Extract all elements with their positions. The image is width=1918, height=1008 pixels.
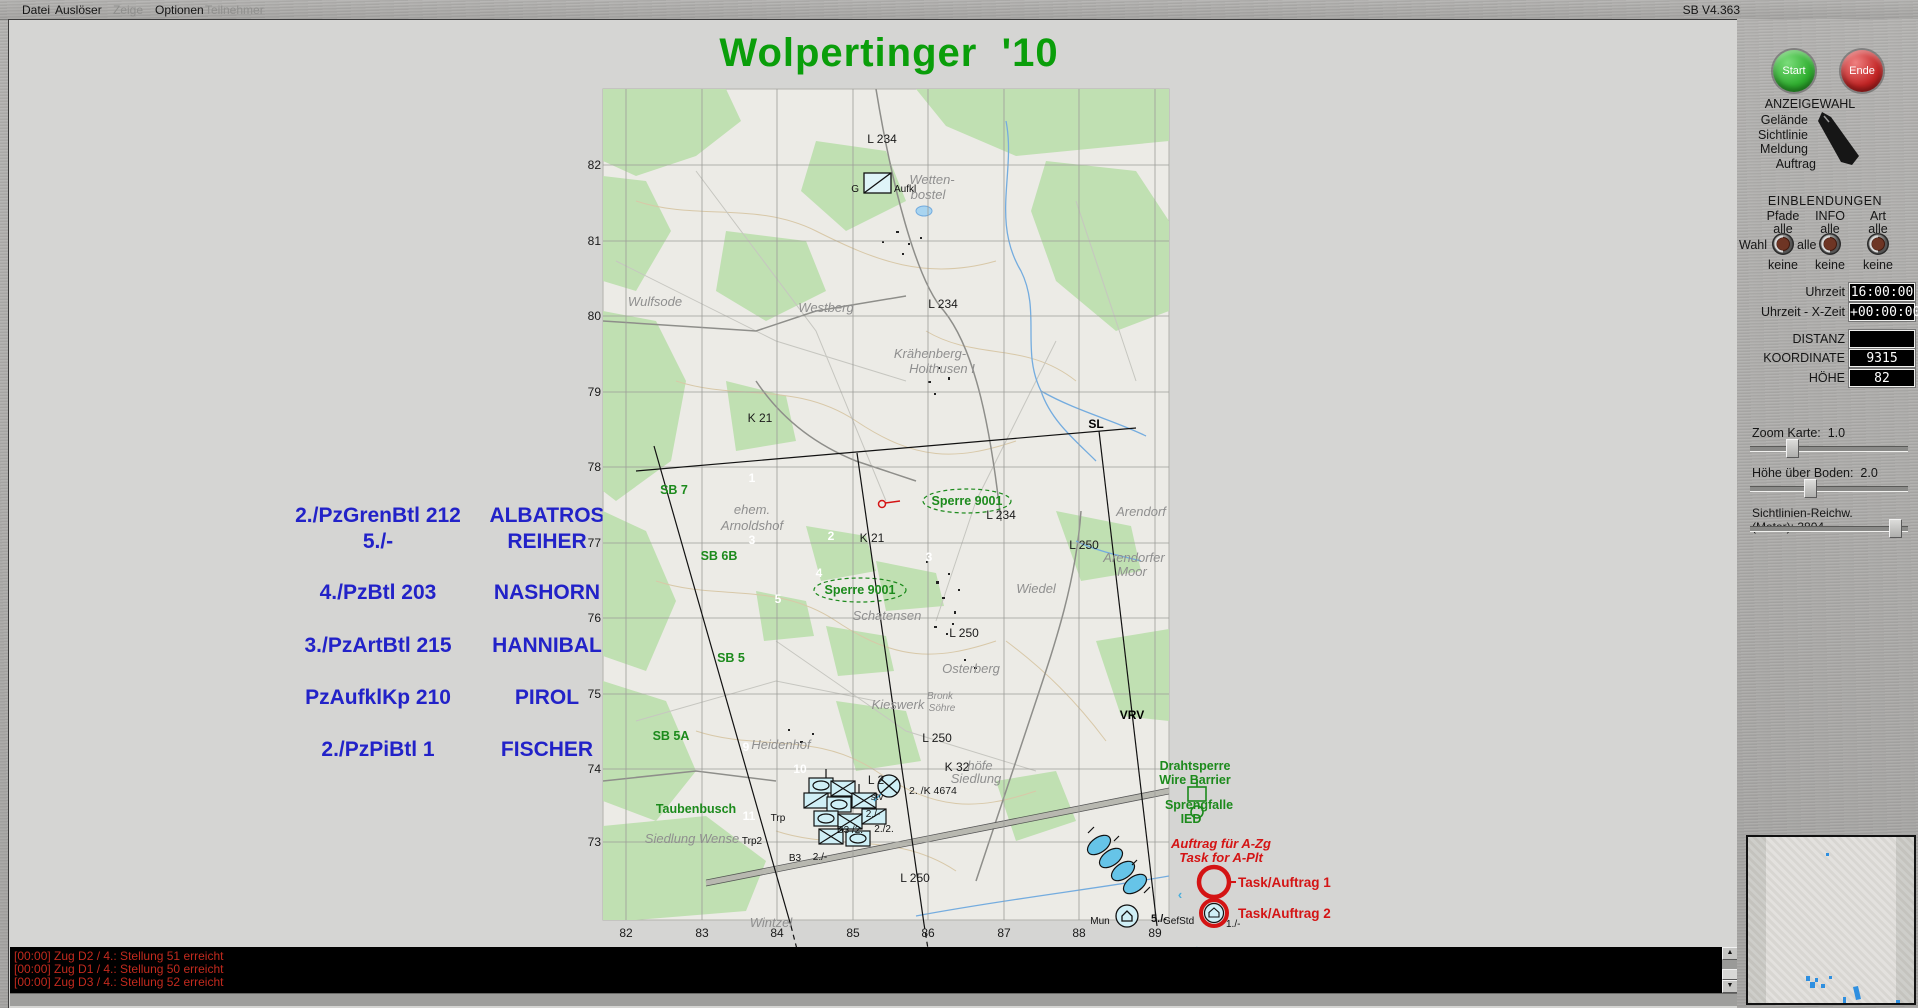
info-knob[interactable]	[1817, 231, 1843, 257]
zoom-slider-handle[interactable]	[1786, 439, 1799, 458]
svg-text:L 234: L 234	[928, 297, 958, 311]
tactical-map[interactable]: 828180797877767574738283848586878889L 23…	[576, 81, 1421, 961]
svg-text:73: 73	[588, 835, 602, 849]
svg-text:B3: B3	[789, 853, 802, 864]
svg-text:Task/Auftrag 2: Task/Auftrag 2	[1238, 906, 1331, 921]
svg-text:Trp2: Trp2	[742, 836, 763, 847]
menu-datei[interactable]: Datei	[22, 3, 50, 17]
svg-text:2. /K 4674: 2. /K 4674	[909, 785, 957, 797]
svg-text:77: 77	[588, 536, 602, 550]
svg-text:4: 4	[816, 566, 823, 580]
scroll-down-button[interactable]: ▼	[1722, 980, 1738, 993]
svg-text:Mun: Mun	[1090, 916, 1109, 927]
hoehe-readout: HÖHE 82	[1737, 369, 1918, 387]
wahl-label: Wahl	[1737, 238, 1767, 252]
svg-text:88: 88	[1072, 926, 1086, 940]
uhrzeit-readout: Uhrzeit 16:00:00	[1737, 283, 1918, 301]
col-art-name: Art	[1858, 209, 1898, 223]
menu-ausloeser[interactable]: Auslöser	[55, 3, 102, 17]
svg-text:3: 3	[749, 533, 756, 547]
scroll-thumb[interactable]	[1722, 969, 1738, 980]
sicht-slider[interactable]	[1750, 526, 1908, 532]
uhrzeit-value: 16:00:00	[1849, 283, 1915, 301]
svg-text:9: 9	[743, 740, 750, 754]
zoom-slider-label: Zoom Karte: 1.0	[1752, 426, 1845, 440]
svg-text:L 250: L 250	[922, 731, 952, 745]
svg-text:Siedlung: Siedlung	[951, 771, 1002, 786]
distanz-value	[1849, 330, 1915, 348]
anzeige-auftrag[interactable]: Auftrag	[1737, 157, 1816, 171]
svg-text:10: 10	[793, 762, 807, 776]
xzeit-value: +00:00:00	[1849, 303, 1915, 321]
svg-text:IED: IED	[1181, 812, 1202, 826]
svg-text:82: 82	[588, 158, 602, 172]
xzeit-readout: Uhrzeit - X-Zeit +00:00:00	[1737, 303, 1918, 321]
svg-text:80: 80	[588, 309, 602, 323]
svg-text:B3 /2.: B3 /2.	[837, 825, 863, 836]
svg-text:Wire Barrier: Wire Barrier	[1159, 773, 1231, 787]
svg-text:L 250: L 250	[900, 871, 930, 885]
hoehe-slider-label: Höhe über Boden: 2.0	[1752, 466, 1878, 480]
minimap-units	[1748, 837, 1914, 1003]
svg-text:L 2: L 2	[868, 773, 885, 787]
anzeigewahl-title: ANZEIGEWAHL	[1740, 97, 1880, 111]
svg-text:Krähenberg-: Krähenberg-	[894, 346, 967, 361]
svg-text:L 234: L 234	[986, 508, 1016, 522]
anzeige-sichtlinie[interactable]: Sichtlinie	[1737, 128, 1808, 142]
svg-text:Siedlung Wense: Siedlung Wense	[645, 831, 739, 846]
art-knob[interactable]	[1865, 231, 1891, 257]
svg-text:Arendorf: Arendorf	[1115, 504, 1167, 519]
zoom-slider-value: 1.0	[1828, 426, 1845, 440]
svg-text:K 21: K 21	[748, 411, 773, 425]
svg-text:Heidenhof: Heidenhof	[751, 737, 812, 752]
menu-bar: Datei Auslöser Zeige Optionen Teilnehmer…	[0, 0, 1918, 20]
uhrzeit-label: Uhrzeit	[1737, 285, 1845, 299]
svg-text:2: 2	[828, 529, 835, 543]
pen-cursor-icon	[1818, 112, 1864, 168]
svg-text:ehem.: ehem.	[734, 502, 770, 517]
svg-text:Task/Auftrag 1: Task/Auftrag 1	[1238, 875, 1331, 890]
status-message: [00:00] Zug D2 / 4.: Stellung 51 erreich…	[10, 950, 1722, 963]
koordinate-label: KOORDINATE	[1737, 351, 1845, 365]
svg-text:Moor: Moor	[1117, 564, 1147, 579]
svg-text:Sprengfalle: Sprengfalle	[1165, 798, 1233, 812]
svg-text:Auftrag für A-Zg: Auftrag für A-Zg	[1170, 836, 1271, 851]
svg-text:1: 1	[749, 471, 756, 485]
col-info-name: INFO	[1810, 209, 1850, 223]
svg-text:K 21: K 21	[860, 531, 885, 545]
svg-text:Wintzel: Wintzel	[750, 915, 794, 930]
task-1-marker[interactable]	[1199, 867, 1236, 897]
anzeige-meldung[interactable]: Meldung	[1737, 142, 1808, 156]
svg-text:L 234: L 234	[867, 132, 897, 146]
message-console: [00:00] Zug D2 / 4.: Stellung 51 erreich…	[10, 947, 1722, 993]
svg-text:Wetten-: Wetten-	[909, 172, 955, 187]
application-window: Datei Auslöser Zeige Optionen Teilnehmer…	[0, 0, 1918, 1008]
svg-text:74: 74	[588, 762, 602, 776]
svg-text:Holthusen I: Holthusen I	[909, 361, 975, 376]
svg-text:SL: SL	[1088, 417, 1103, 431]
svg-text:86: 86	[921, 926, 935, 940]
col-pfade-keine: keine	[1763, 258, 1803, 272]
svg-text:Söhre: Söhre	[929, 703, 956, 714]
svg-text:Task for A-Plt: Task for A-Plt	[1179, 850, 1263, 865]
distanz-readout: DISTANZ	[1737, 330, 1918, 348]
control-panel: Start Ende ANZEIGEWAHL Gelände Sichtlini…	[1737, 19, 1918, 1008]
svg-text:85: 85	[846, 926, 860, 940]
status-message: [00:00] Zug D1 / 4.: Stellung 50 erreich…	[10, 963, 1722, 976]
svg-text:2./-: 2./-	[813, 852, 827, 863]
distanz-label: DISTANZ	[1737, 332, 1845, 346]
menu-optionen[interactable]: Optionen	[155, 3, 204, 17]
col-art-keine: keine	[1858, 258, 1898, 272]
pfade-knob[interactable]	[1770, 231, 1796, 257]
svg-text:2./2.: 2./2.	[874, 824, 893, 835]
menu-zeige: Zeige	[113, 3, 143, 17]
message-scrollbar[interactable]: ▲ ▼	[1722, 947, 1738, 993]
zoom-slider[interactable]	[1750, 446, 1908, 452]
message-hscrollbar[interactable]	[10, 993, 1737, 1006]
unit-symbol-recon[interactable]	[864, 173, 891, 193]
svg-text:VRV: VRV	[1120, 708, 1144, 722]
svg-text:SB 5A: SB 5A	[653, 729, 690, 743]
col-info-keine: keine	[1810, 258, 1850, 272]
svg-text:Kieswerk: Kieswerk	[872, 697, 926, 712]
svg-text:L 250: L 250	[1069, 538, 1099, 552]
ende-button[interactable]: Ende	[1841, 50, 1883, 92]
scenario-title: Wolpertinger '10	[589, 31, 1189, 76]
svg-text:L 250: L 250	[949, 626, 979, 640]
svg-text:75: 75	[588, 687, 602, 701]
svg-text:79: 79	[588, 385, 602, 399]
xzeit-label: Uhrzeit - X-Zeit	[1737, 305, 1845, 319]
svg-text:Sperre 9001: Sperre 9001	[825, 583, 896, 597]
svg-text:Aufkl: Aufkl	[894, 184, 916, 195]
alle-mid-label: alle	[1797, 238, 1816, 252]
svg-text:5: 5	[775, 592, 782, 606]
svg-text:‹: ‹	[1178, 887, 1182, 902]
svg-text:stv: stv	[871, 792, 884, 803]
svg-text:Arendorfer: Arendorfer	[1102, 550, 1165, 565]
start-button[interactable]: Start	[1773, 50, 1815, 92]
svg-text:SB 5: SB 5	[717, 651, 745, 665]
hoehe-slider-value: 2.0	[1860, 466, 1877, 480]
einblendungen-title: EINBLENDUNGEN	[1745, 194, 1905, 208]
koordinate-readout: KOORDINATE 9315 7482	[1737, 349, 1918, 367]
svg-text:Westberg: Westberg	[798, 300, 854, 315]
task-2-marker[interactable]	[1201, 900, 1227, 926]
hoehe-slider-handle[interactable]	[1804, 479, 1817, 498]
svg-text:Sperre 9001: Sperre 9001	[932, 494, 1003, 508]
menu-teilnehmer: Teilnehmer	[205, 3, 264, 17]
svg-text:76: 76	[588, 611, 602, 625]
svg-text:Schatensen: Schatensen	[853, 608, 922, 623]
hoehe-label: HÖHE	[1737, 371, 1845, 385]
svg-text:81: 81	[588, 234, 602, 248]
svg-text:Bronk: Bronk	[927, 691, 954, 702]
hoehe-slider[interactable]	[1750, 486, 1908, 492]
svg-text:11: 11	[743, 809, 756, 823]
svg-text:89: 89	[1148, 926, 1162, 940]
svg-text:G: G	[851, 184, 859, 195]
svg-text:GefStd: GefStd	[1163, 916, 1194, 927]
svg-text:3: 3	[926, 550, 933, 564]
svg-text:Wiedel: Wiedel	[1016, 581, 1057, 596]
svg-text:Arnoldshof: Arnoldshof	[720, 518, 785, 533]
sicht-slider-handle[interactable]	[1889, 519, 1902, 538]
col-pfade-name: Pfade	[1763, 209, 1803, 223]
app-version: SB V4.363	[1683, 3, 1740, 17]
svg-text:83: 83	[695, 926, 709, 940]
svg-text:78: 78	[588, 460, 602, 474]
svg-text:Osterberg: Osterberg	[942, 661, 1001, 676]
overview-minimap[interactable]	[1746, 835, 1916, 1005]
svg-text:2./-: 2./-	[866, 809, 880, 820]
svg-text:82: 82	[619, 926, 633, 940]
svg-text:Taubenbusch: Taubenbusch	[656, 802, 736, 816]
map-workspace: Wolpertinger '10 2./PzGrenBtl 212 ALBATR…	[8, 19, 1738, 1008]
svg-text:87: 87	[997, 926, 1011, 940]
svg-text:Drahtsperre: Drahtsperre	[1160, 759, 1231, 773]
svg-text:SB 7: SB 7	[660, 483, 688, 497]
svg-text:SB 6B: SB 6B	[701, 549, 738, 563]
svg-text:Wulfsode: Wulfsode	[628, 294, 682, 309]
unit-symbol-mun[interactable]	[1116, 905, 1138, 927]
anzeige-gelaende[interactable]: Gelände	[1737, 113, 1808, 127]
status-message: [00:00] Zug D3 / 4.: Stellung 52 erreich…	[10, 976, 1722, 989]
scroll-up-button[interactable]: ▲	[1722, 947, 1738, 960]
koordinate-value: 9315 7482	[1849, 349, 1915, 367]
hoehe-value: 82	[1849, 369, 1915, 387]
svg-text:Trp: Trp	[771, 813, 786, 824]
